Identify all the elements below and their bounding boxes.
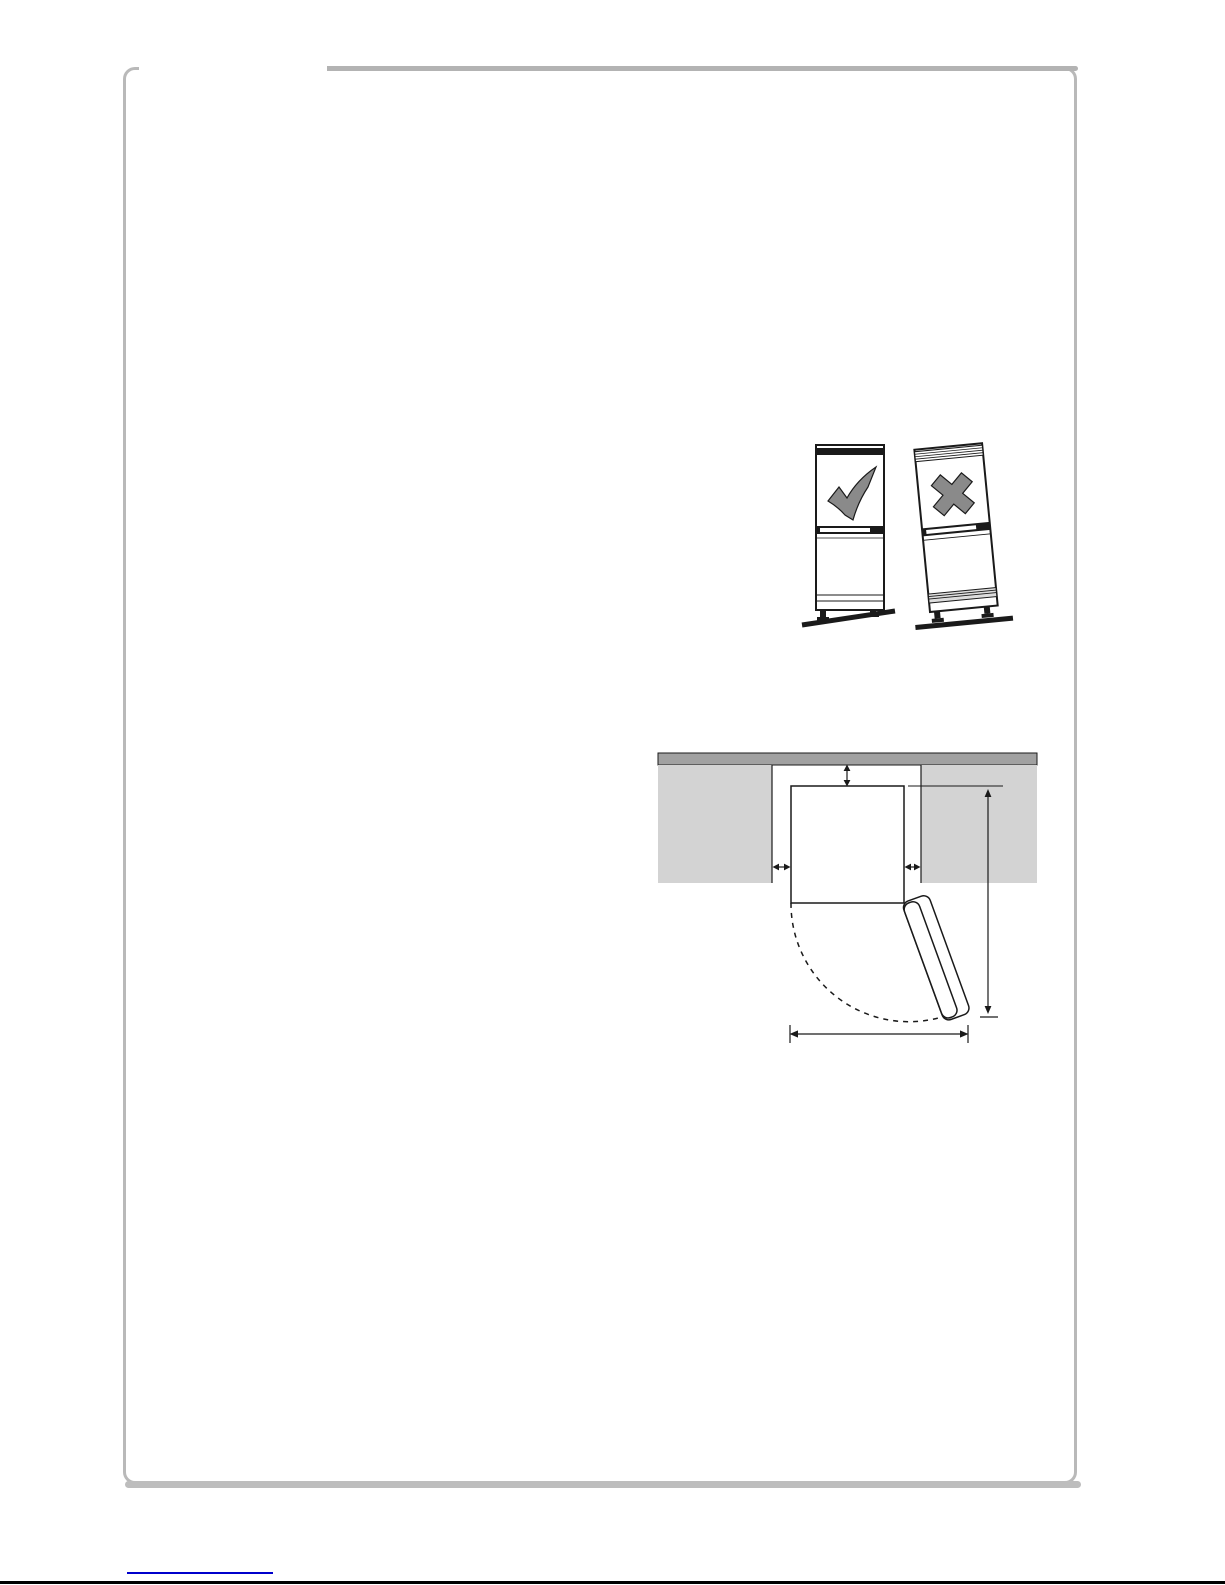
fridge-upright: [802, 445, 895, 625]
top-clearance-arrow: [844, 765, 851, 787]
wall: [658, 753, 1037, 765]
page-border-top-gap: [139, 64, 327, 74]
door-width-arrow: [790, 1025, 969, 1043]
clearance-figure: [645, 745, 1045, 1045]
floor-line: [915, 618, 1013, 627]
left-cabinet: [658, 765, 772, 883]
footer-link-underline[interactable]: [127, 1572, 273, 1574]
top-band: [816, 448, 884, 455]
fridge-footprint: [791, 786, 904, 903]
leveling-figure: [790, 435, 1015, 635]
manual-page: [0, 0, 1225, 1585]
page-top-rule: [327, 66, 1078, 71]
left-clearance-arrow: [773, 864, 791, 871]
right-clearance-arrow: [905, 864, 921, 871]
page-footer-rule: [0, 1581, 1225, 1584]
page-bottom-shadow: [125, 1481, 1081, 1488]
left-foot: [820, 610, 826, 617]
open-door: [902, 894, 971, 1022]
fridge-tilted: [898, 442, 1013, 628]
floor-line: [802, 611, 895, 625]
right-cabinet: [921, 765, 1037, 883]
